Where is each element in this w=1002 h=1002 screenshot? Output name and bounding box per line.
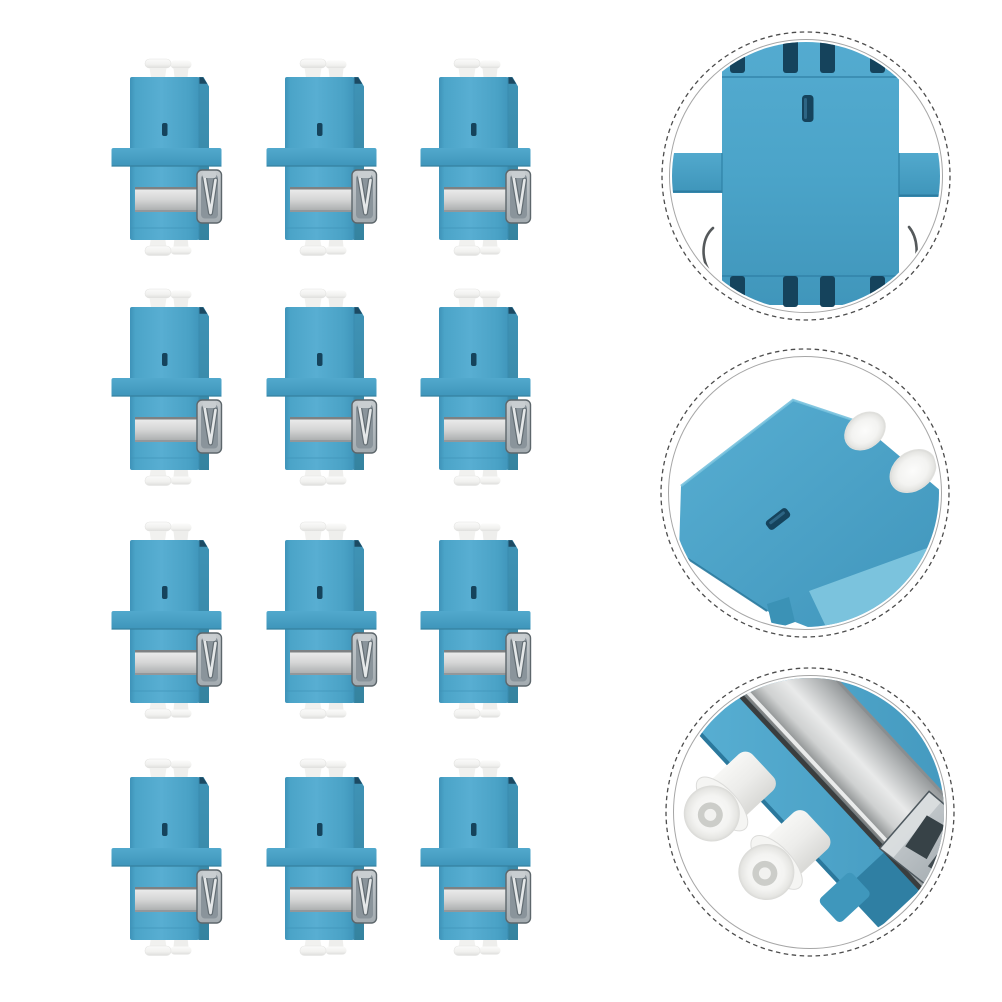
angled-body-closeup	[679, 400, 944, 630]
adapter-image	[111, 58, 223, 257]
adapter-image	[420, 58, 532, 257]
blue-lc-duplex-adapter	[111, 758, 223, 957]
blue-lc-duplex-adapter	[420, 521, 532, 720]
blue-lc-duplex-adapter	[266, 58, 378, 257]
blue-lc-duplex-adapter	[420, 58, 532, 257]
adapter-image	[111, 521, 223, 720]
adapter-image	[111, 758, 223, 957]
adapter-image	[266, 288, 378, 487]
adapter-image	[420, 758, 532, 957]
detail-circle-ferrule-end	[660, 662, 960, 962]
blue-lc-duplex-adapter	[111, 288, 223, 487]
detail-circle-angled-body	[655, 343, 955, 643]
product-photo	[0, 0, 1002, 1002]
blue-lc-duplex-adapter	[420, 288, 532, 487]
adapter-body	[679, 400, 941, 629]
blue-lc-duplex-adapter	[420, 758, 532, 957]
adapter-image	[420, 288, 532, 487]
blue-lc-duplex-adapter	[266, 521, 378, 720]
blue-lc-duplex-adapter	[266, 758, 378, 957]
blue-lc-duplex-adapter	[266, 288, 378, 487]
detail-circle-top-face	[656, 26, 956, 326]
adapter-image	[420, 521, 532, 720]
center-slot	[802, 95, 814, 122]
top-face-closeup	[668, 36, 944, 307]
adapter-image	[266, 58, 378, 257]
latch-wire-left	[704, 228, 713, 269]
adapter-image	[266, 758, 378, 957]
adapter-image	[266, 521, 378, 720]
blue-lc-duplex-adapter	[111, 58, 223, 257]
blue-lc-duplex-adapter	[111, 521, 223, 720]
ferrule-end-closeup	[660, 662, 960, 962]
adapter-image	[111, 288, 223, 487]
